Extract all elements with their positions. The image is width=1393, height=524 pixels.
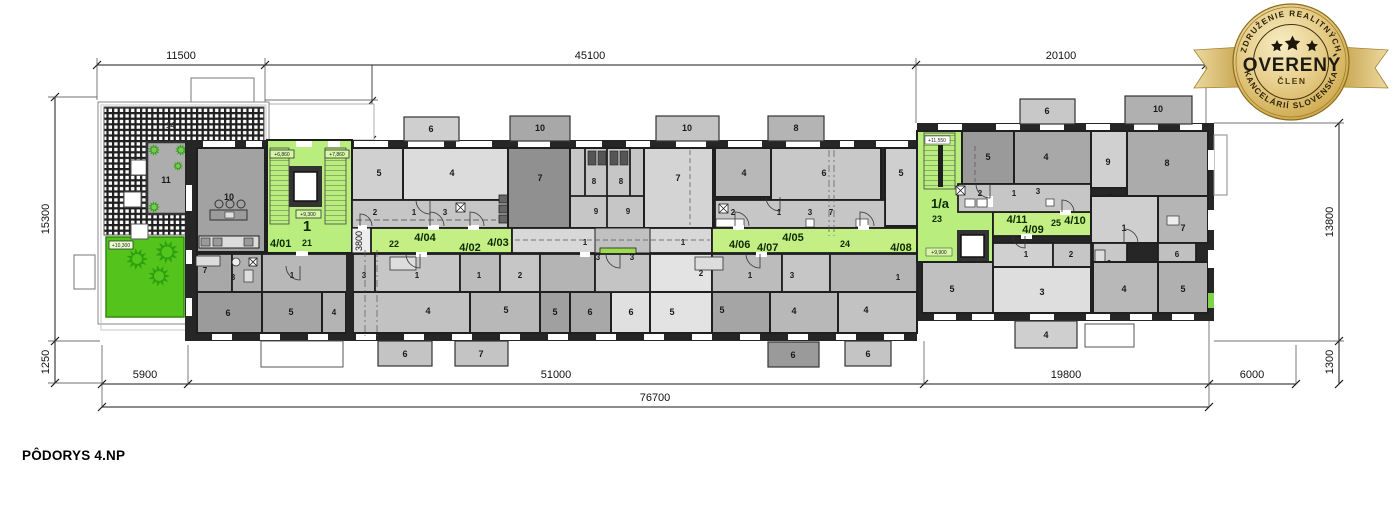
svg-text:6: 6: [428, 124, 433, 134]
svg-text:4: 4: [1043, 330, 1048, 340]
svg-text:3: 3: [790, 271, 795, 280]
svg-text:4/08: 4/08: [890, 242, 911, 254]
svg-text:6: 6: [225, 308, 230, 318]
svg-text:4/05: 4/05: [782, 232, 803, 244]
svg-text:9: 9: [626, 207, 631, 216]
svg-text:+6,860: +6,860: [274, 152, 290, 158]
svg-text:6: 6: [587, 307, 592, 317]
svg-text:3: 3: [362, 271, 367, 280]
svg-text:+7,860: +7,860: [329, 152, 345, 158]
svg-text:3800: 3800: [354, 231, 364, 251]
svg-text:3: 3: [443, 208, 448, 217]
svg-text:1: 1: [896, 273, 901, 282]
svg-text:21: 21: [302, 238, 312, 248]
svg-text:3: 3: [808, 208, 813, 217]
svg-text:1: 1: [1024, 250, 1029, 259]
svg-text:ČLEN: ČLEN: [1277, 75, 1306, 86]
svg-text:6: 6: [790, 350, 795, 360]
svg-text:2: 2: [978, 189, 983, 198]
svg-text:9: 9: [1105, 157, 1110, 167]
svg-text:4: 4: [741, 168, 746, 178]
svg-text:5900: 5900: [133, 369, 157, 381]
svg-text:4: 4: [791, 306, 796, 316]
svg-text:+9,900: +9,900: [931, 250, 947, 256]
svg-text:PÔDORYS 4.NP: PÔDORYS 4.NP: [22, 448, 125, 463]
svg-text:4: 4: [1121, 284, 1126, 294]
svg-text:9: 9: [594, 207, 599, 216]
svg-text:7: 7: [478, 349, 483, 359]
svg-text:5: 5: [503, 305, 508, 315]
svg-text:+10,300: +10,300: [112, 243, 130, 249]
svg-text:6: 6: [1044, 106, 1049, 116]
svg-text:4: 4: [425, 306, 430, 316]
svg-text:51000: 51000: [541, 369, 572, 381]
svg-text:7: 7: [675, 173, 680, 183]
svg-text:6: 6: [628, 307, 633, 317]
svg-text:2: 2: [518, 271, 523, 280]
svg-text:3: 3: [1036, 187, 1041, 196]
svg-text:76700: 76700: [640, 392, 671, 404]
svg-text:5: 5: [985, 152, 990, 162]
svg-text:1250: 1250: [40, 350, 52, 374]
svg-text:1: 1: [415, 271, 420, 280]
svg-text:7: 7: [829, 208, 834, 217]
svg-text:7: 7: [537, 173, 542, 183]
svg-text:3: 3: [1039, 287, 1044, 297]
svg-text:5: 5: [949, 284, 954, 294]
svg-text:4: 4: [1043, 152, 1048, 162]
svg-text:45100: 45100: [575, 50, 606, 62]
svg-text:5: 5: [719, 305, 724, 315]
svg-text:6: 6: [821, 168, 826, 178]
svg-text:8: 8: [619, 177, 624, 186]
svg-text:13800: 13800: [1324, 207, 1336, 238]
svg-text:4: 4: [332, 308, 337, 317]
svg-text:1: 1: [412, 208, 417, 217]
svg-text:8: 8: [592, 177, 597, 186]
svg-text:5: 5: [669, 307, 674, 317]
svg-text:24: 24: [840, 239, 850, 249]
svg-text:10: 10: [535, 123, 545, 133]
svg-text:2: 2: [373, 208, 378, 217]
svg-text:4/04: 4/04: [414, 232, 436, 244]
svg-text:4/06: 4/06: [729, 239, 750, 251]
svg-text:10: 10: [1153, 104, 1163, 114]
svg-text:7: 7: [1180, 223, 1185, 233]
svg-text:4/10: 4/10: [1064, 215, 1085, 227]
svg-text:1: 1: [583, 238, 588, 247]
svg-text:23: 23: [932, 214, 942, 224]
svg-text:5: 5: [376, 168, 381, 178]
svg-text:5: 5: [1180, 284, 1185, 294]
svg-text:1: 1: [303, 218, 311, 235]
svg-text:8: 8: [231, 273, 236, 282]
svg-text:14: 14: [166, 121, 175, 130]
svg-text:1: 1: [681, 238, 686, 247]
svg-text:6000: 6000: [1240, 369, 1264, 381]
svg-text:4/01: 4/01: [270, 238, 291, 250]
svg-text:4: 4: [449, 168, 454, 178]
svg-text:6: 6: [1175, 250, 1180, 259]
svg-text:5: 5: [288, 307, 293, 317]
svg-text:4/02: 4/02: [459, 242, 480, 254]
svg-text:20100: 20100: [1046, 50, 1077, 62]
svg-text:8: 8: [793, 123, 798, 133]
svg-text:5: 5: [898, 168, 903, 178]
svg-text:1: 1: [1012, 189, 1017, 198]
svg-text:4/03: 4/03: [487, 237, 508, 249]
svg-text:22: 22: [389, 239, 399, 249]
svg-text:1: 1: [748, 271, 753, 280]
svg-text:2: 2: [1069, 250, 1074, 259]
svg-text:3: 3: [630, 253, 635, 262]
svg-text:19800: 19800: [1051, 369, 1082, 381]
svg-text:6: 6: [865, 349, 870, 359]
svg-text:11: 11: [161, 175, 171, 185]
svg-text:1/a: 1/a: [931, 196, 950, 211]
svg-text:1: 1: [777, 208, 782, 217]
svg-text:1: 1: [477, 271, 482, 280]
svg-text:25: 25: [1051, 218, 1061, 228]
svg-text:+11,550: +11,550: [928, 138, 946, 144]
svg-text:4: 4: [863, 305, 868, 315]
svg-text:10: 10: [682, 123, 692, 133]
svg-text:OVERENÝ: OVERENÝ: [1243, 54, 1342, 76]
svg-text:3: 3: [596, 253, 601, 262]
svg-text:7: 7: [203, 266, 208, 275]
svg-text:6: 6: [402, 349, 407, 359]
svg-text:5: 5: [552, 307, 557, 317]
svg-text:8: 8: [1164, 158, 1169, 168]
svg-text:15300: 15300: [40, 204, 52, 235]
svg-text:11500: 11500: [166, 50, 196, 62]
svg-text:1300: 1300: [1324, 350, 1336, 374]
